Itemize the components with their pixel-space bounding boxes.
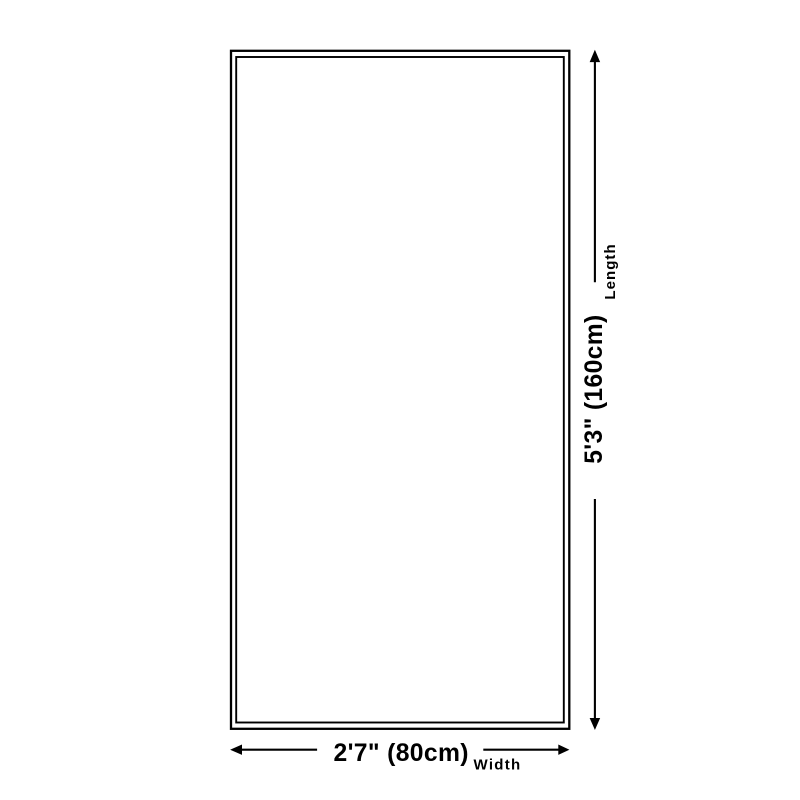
svg-text:Width: Width [474, 757, 522, 774]
svg-text:5'3" (160cm): 5'3" (160cm) [581, 314, 608, 463]
svg-text:2'7" (80cm): 2'7" (80cm) [334, 740, 469, 767]
svg-text:Length: Length [602, 243, 619, 299]
